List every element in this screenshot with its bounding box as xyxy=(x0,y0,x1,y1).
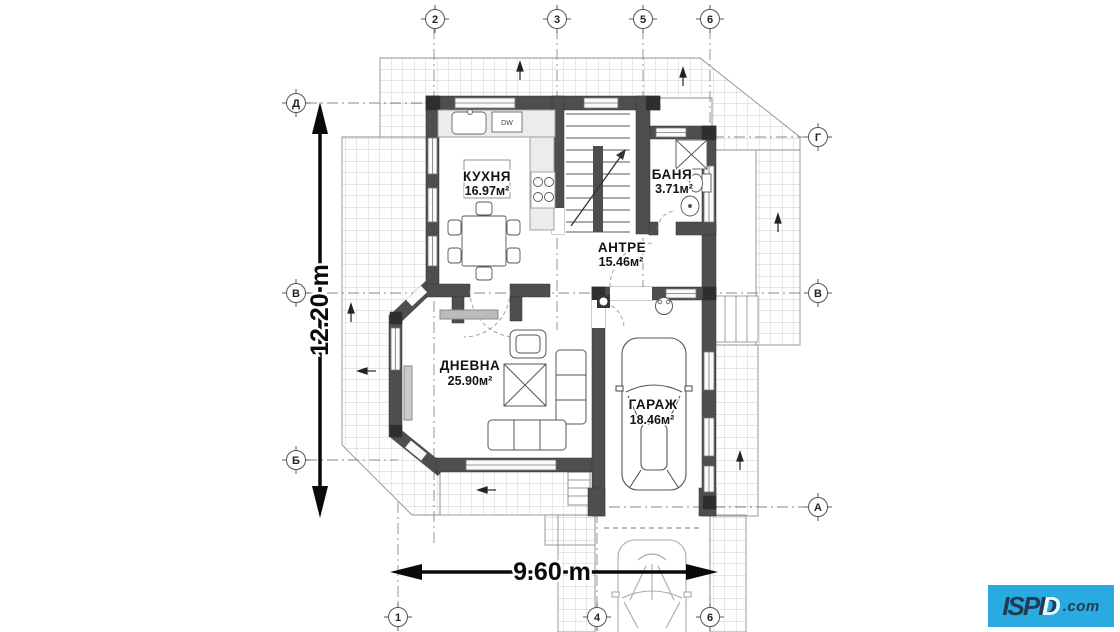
staircase xyxy=(566,114,630,232)
room-label-living: ДНЕВНА 25.90м² xyxy=(440,358,501,388)
wall-stub-left xyxy=(426,284,470,297)
axis-marker-top-3: 3 xyxy=(543,5,571,33)
axis-marker-right-g: Г xyxy=(804,123,832,151)
terrace-right-lower xyxy=(714,345,758,516)
axis-label: Б xyxy=(292,455,300,467)
boiler xyxy=(656,298,673,315)
driveway xyxy=(604,528,700,632)
axis-marker-right-v: В xyxy=(804,279,832,307)
living-furniture xyxy=(404,310,586,450)
axis-label: Д xyxy=(292,98,300,110)
axis-marker-top-2: 2 xyxy=(421,5,449,33)
chair xyxy=(476,267,492,280)
axis-label: 2 xyxy=(432,14,438,26)
room-area: 16.97м² xyxy=(465,184,510,198)
axis-marker-right-a: А xyxy=(804,493,832,521)
axis-label: 6 xyxy=(707,14,713,26)
kitchen-faucet xyxy=(468,110,473,115)
dimension-vertical: 12.20 m xyxy=(306,102,334,518)
room-name: КУХНЯ xyxy=(463,169,511,184)
axis-label: В xyxy=(292,288,300,300)
chair xyxy=(476,202,492,215)
ispd-logo: ISPDD.com xyxy=(988,585,1114,627)
room-area: 3.71м² xyxy=(655,182,693,196)
floor-plan-drawing: 2 3 5 6 1 4 6 Д xyxy=(0,0,1120,632)
room-name: ГАРАЖ xyxy=(629,397,678,412)
driveway-car xyxy=(612,540,691,632)
axis-label: 3 xyxy=(554,14,560,26)
stair-direction-arrowhead xyxy=(616,149,626,160)
terrace-right-upper xyxy=(756,150,800,345)
chair xyxy=(507,220,520,235)
axis-marker-left-b: Б xyxy=(282,446,310,474)
burner xyxy=(534,178,543,187)
tv-cabinet xyxy=(440,310,498,319)
exterior-steps-right xyxy=(714,296,758,342)
room-label-bathroom: БАНЯ 3.71м² xyxy=(652,167,693,196)
room-area: 25.90м² xyxy=(448,374,493,388)
dimension-height-label: 12.20 m xyxy=(306,264,334,356)
room-label-kitchen: КУХНЯ 16.97м² xyxy=(463,169,511,198)
axis-label: В xyxy=(814,288,822,300)
logo-suffix-text: .com xyxy=(1063,599,1100,614)
room-name: АНТРЕ xyxy=(598,240,646,255)
sofa-right xyxy=(556,350,586,424)
room-name: ДНЕВНА xyxy=(440,358,501,373)
axis-marker-bottom-1: 1 xyxy=(384,603,412,631)
axis-label: А xyxy=(814,502,822,514)
wall-bath-bottom-b xyxy=(676,222,716,235)
axis-label: 5 xyxy=(640,14,646,26)
room-name: БАНЯ xyxy=(652,167,692,182)
room-area: 15.46м² xyxy=(599,255,644,269)
room-area: 18.46м² xyxy=(630,413,675,427)
axis-label: 6 xyxy=(707,612,713,624)
floor-plan-page: 2 3 5 6 1 4 6 Д xyxy=(0,0,1120,632)
dimension-width-label: 9.60 m xyxy=(513,558,591,586)
exterior-steps-bottom xyxy=(568,472,590,505)
stove xyxy=(531,172,555,208)
burner xyxy=(545,178,554,187)
wall-stub-right-vert xyxy=(510,297,522,321)
chair xyxy=(448,220,461,235)
sofa-bottom xyxy=(488,420,566,450)
axis-marker-top-6: 6 xyxy=(696,5,724,33)
logo-shadow-letter: D xyxy=(1042,593,1061,619)
axis-label: 4 xyxy=(594,612,601,624)
toilet-tank xyxy=(702,174,711,192)
dishwasher-label: DW xyxy=(501,120,513,127)
garage-objects xyxy=(597,295,692,490)
burner xyxy=(545,193,554,202)
chair xyxy=(507,248,520,263)
terrace-paving xyxy=(342,58,800,632)
chair xyxy=(448,248,461,263)
axis-label: Г xyxy=(815,132,822,144)
axis-marker-left-d: Д xyxy=(282,89,310,117)
wall-bath-left xyxy=(636,96,650,234)
dining-table xyxy=(462,216,506,266)
room-label-hallway: АНТРЕ 15.46м² xyxy=(598,240,646,269)
axis-label: 1 xyxy=(395,612,401,624)
axis-marker-top-5: 5 xyxy=(629,5,657,33)
kitchen-sink xyxy=(452,112,486,134)
wall-stub-right xyxy=(510,284,550,297)
radiator xyxy=(404,366,412,420)
burner xyxy=(534,193,543,202)
wall-garage-post-left xyxy=(588,488,605,516)
door-opening-entrance xyxy=(610,287,652,300)
wall-bath-bottom-a xyxy=(649,222,658,235)
